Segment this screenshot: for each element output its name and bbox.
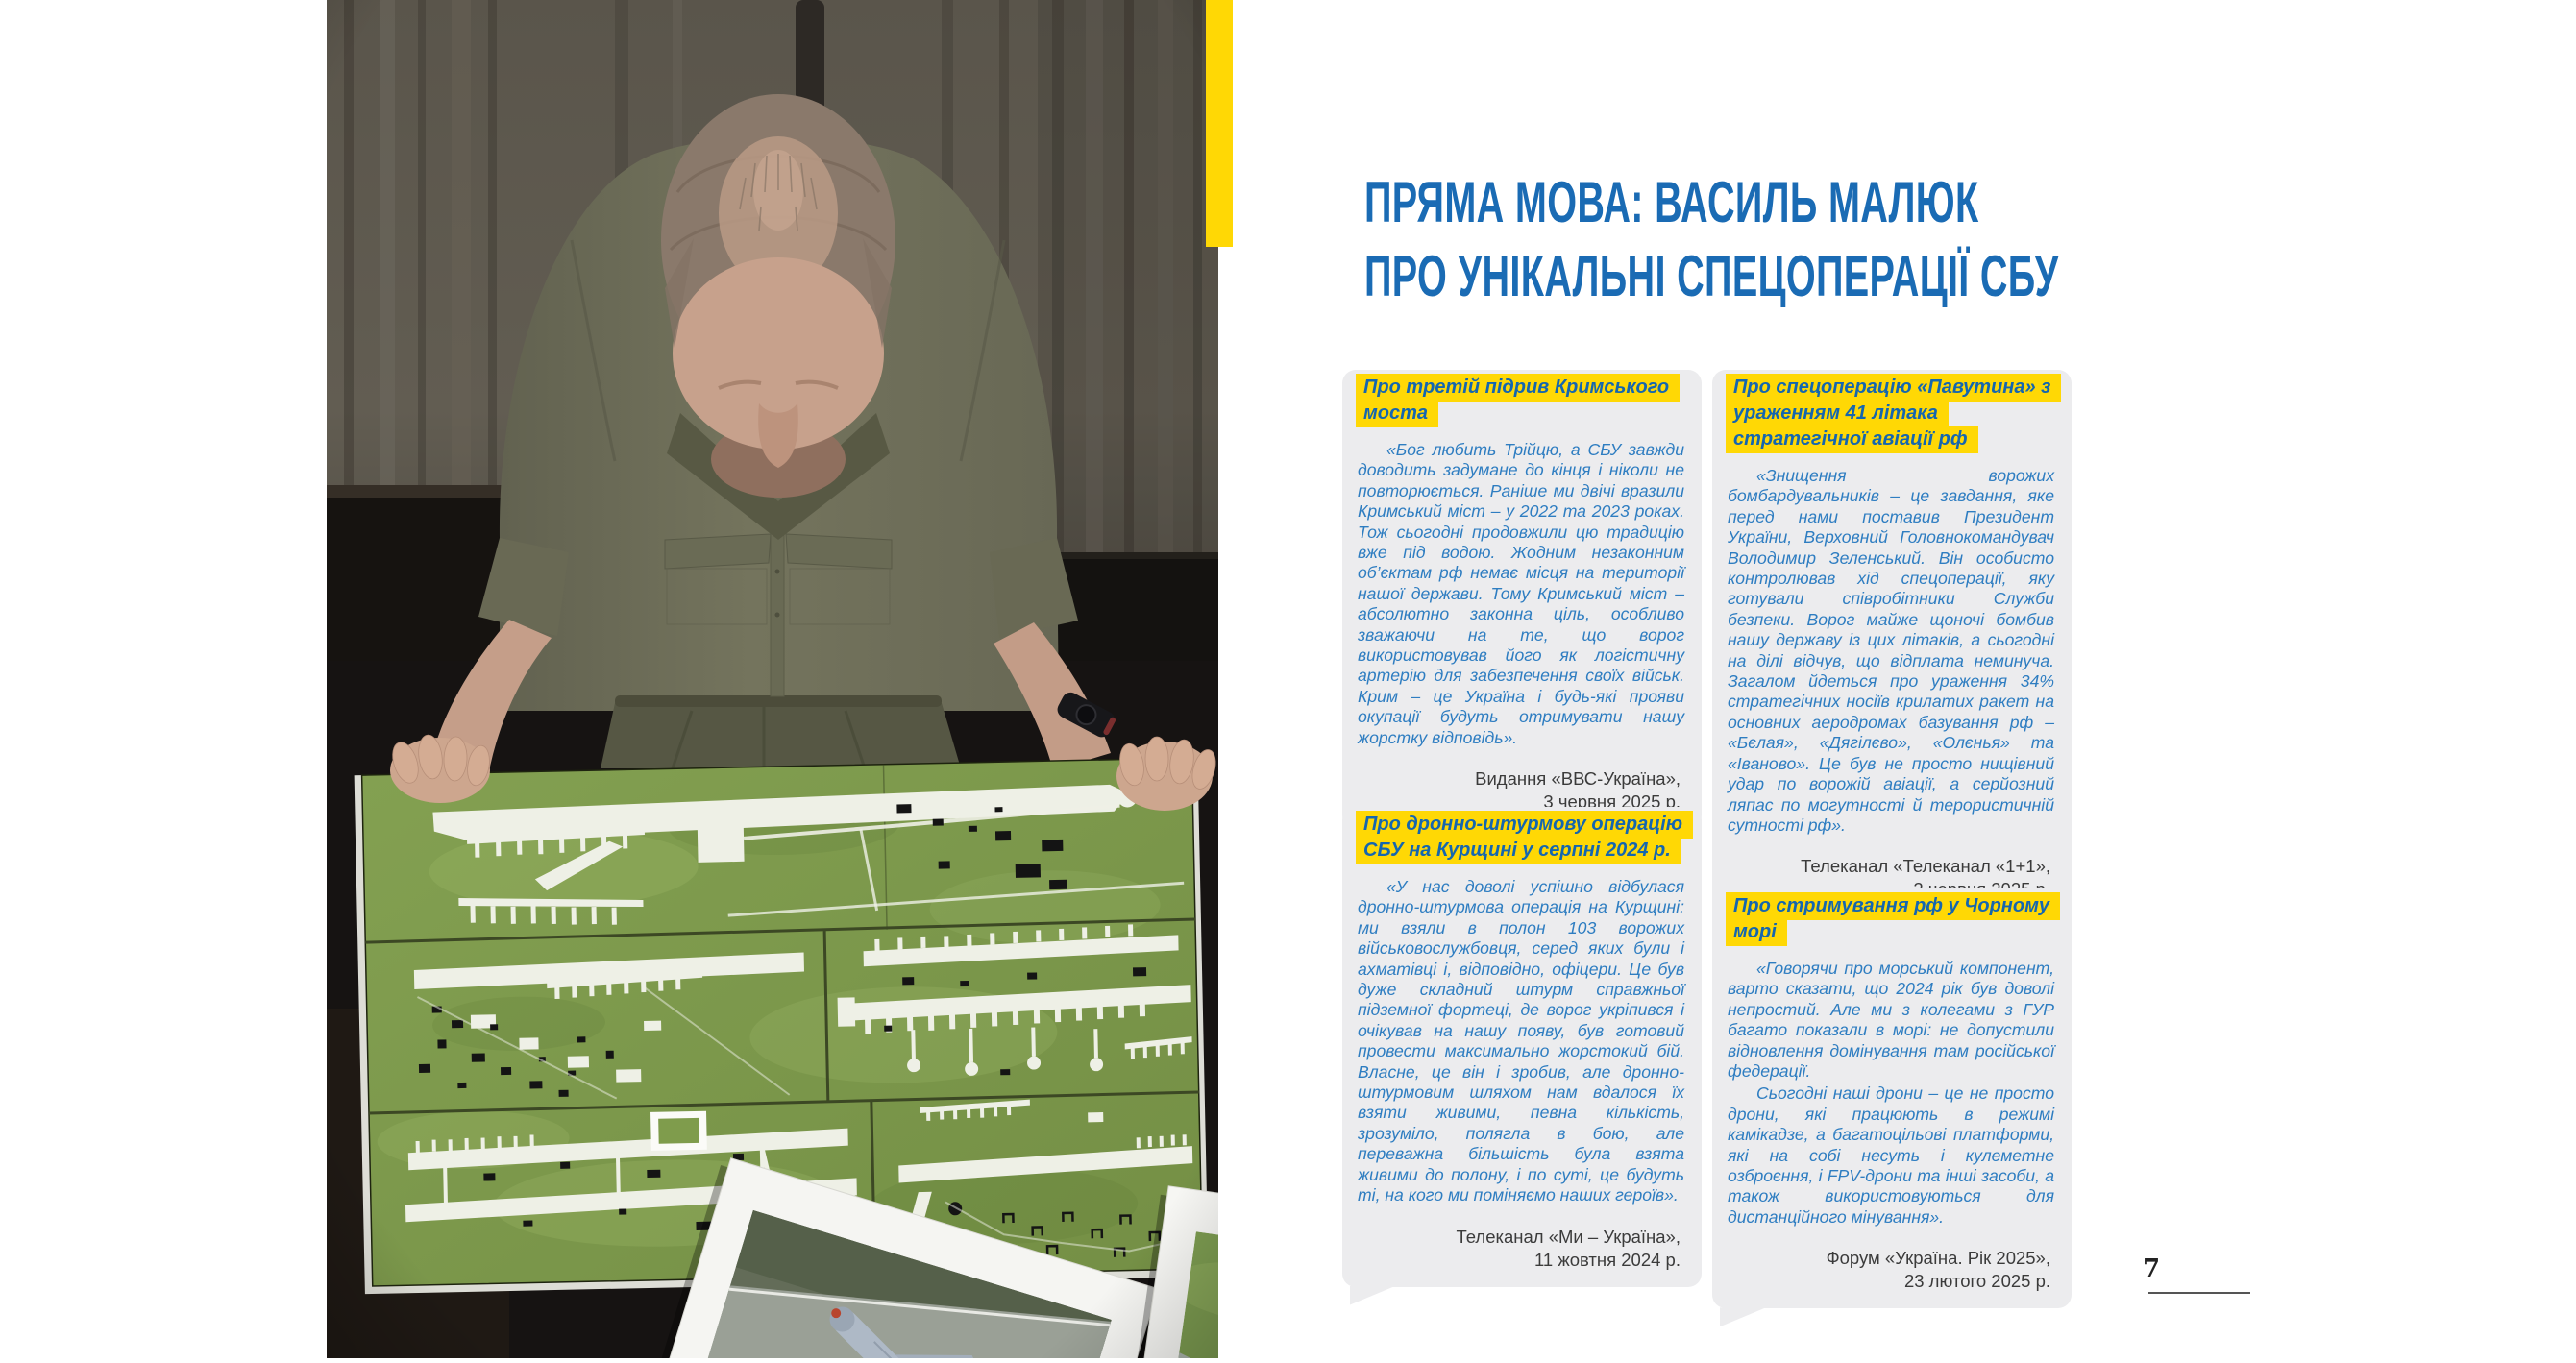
footer-rule xyxy=(2148,1292,2250,1294)
quote-source-date: 11 жовтня 2024 р. xyxy=(1358,1249,1681,1272)
page-title-line2: ПРО УНІКАЛЬНІ СПЕЦОПЕРАЦІЇ СБУ xyxy=(1364,244,2059,308)
accent-bar xyxy=(1206,0,1233,247)
quote-body: «Знищення ворожих бомбардувальників – це… xyxy=(1728,466,2054,836)
quote-heading: Про третій підрив Кримського моста xyxy=(1356,375,1684,426)
photo-illustration: 22М3 xyxy=(327,0,1218,1358)
quote-source: Форум «Україна. Рік 2025», 23 лютого 202… xyxy=(1728,1247,2054,1293)
magazine-spread: { "colors": { "accent_yellow": "#ffd805"… xyxy=(0,0,2576,1358)
quote-source-name: Видання «ВВС-Україна», xyxy=(1358,767,1681,791)
quote-source: Телеканал «Ми – Україна», 11 жовтня 2024… xyxy=(1358,1226,1684,1272)
page-title-line1: ПРЯМА МОВА: ВАСИЛЬ МАЛЮК xyxy=(1364,170,1978,234)
quote-body: «Говорячи про морський компонент, варто … xyxy=(1728,959,2054,1082)
quote-block-kursk-operation: Про дронно-штурмову операцію СБУ на Курщ… xyxy=(1342,807,1702,1287)
quote-body: Сьогодні наші дрони – це не просто дрони… xyxy=(1728,1083,2054,1228)
page-number: 7 xyxy=(2143,1254,2171,1283)
page-title: ПРЯМА МОВА: ВАСИЛЬ МАЛЮКПРО УНІКАЛЬНІ СП… xyxy=(1364,165,2059,313)
quote-heading: Про спецоперацію «Павутина» з ураженням … xyxy=(1726,375,2054,452)
quote-body: «Бог любить Трійцю, а СБУ завжди доводит… xyxy=(1358,440,1684,748)
quote-source-name: Форум «Україна. Рік 2025», xyxy=(1728,1247,2050,1270)
editorial-photo: 22М3 xyxy=(327,0,1218,1358)
photo-vignette xyxy=(327,0,1218,1358)
quote-block-pavutyna: Про спецоперацію «Павутина» з ураженням … xyxy=(1712,370,2072,916)
quote-source-name: Телеканал «Телеканал «1+1», xyxy=(1728,855,2050,878)
quote-body: «У нас доволі успішно відбулася дронно-ш… xyxy=(1358,877,1684,1206)
quote-source-date: 23 лютого 2025 р. xyxy=(1728,1270,2050,1293)
quote-heading: Про стримування рф у Чорному морі xyxy=(1726,893,2054,945)
quote-block-crimean-bridge: Про третій підрив Кримського моста «Бог … xyxy=(1342,370,1702,829)
quote-block-black-sea: Про стримування рф у Чорному морі «Говор… xyxy=(1712,888,2072,1308)
quote-source-name: Телеканал «Ми – Україна», xyxy=(1358,1226,1681,1249)
quote-heading: Про дронно-штурмову операцію СБУ на Курщ… xyxy=(1356,812,1684,864)
